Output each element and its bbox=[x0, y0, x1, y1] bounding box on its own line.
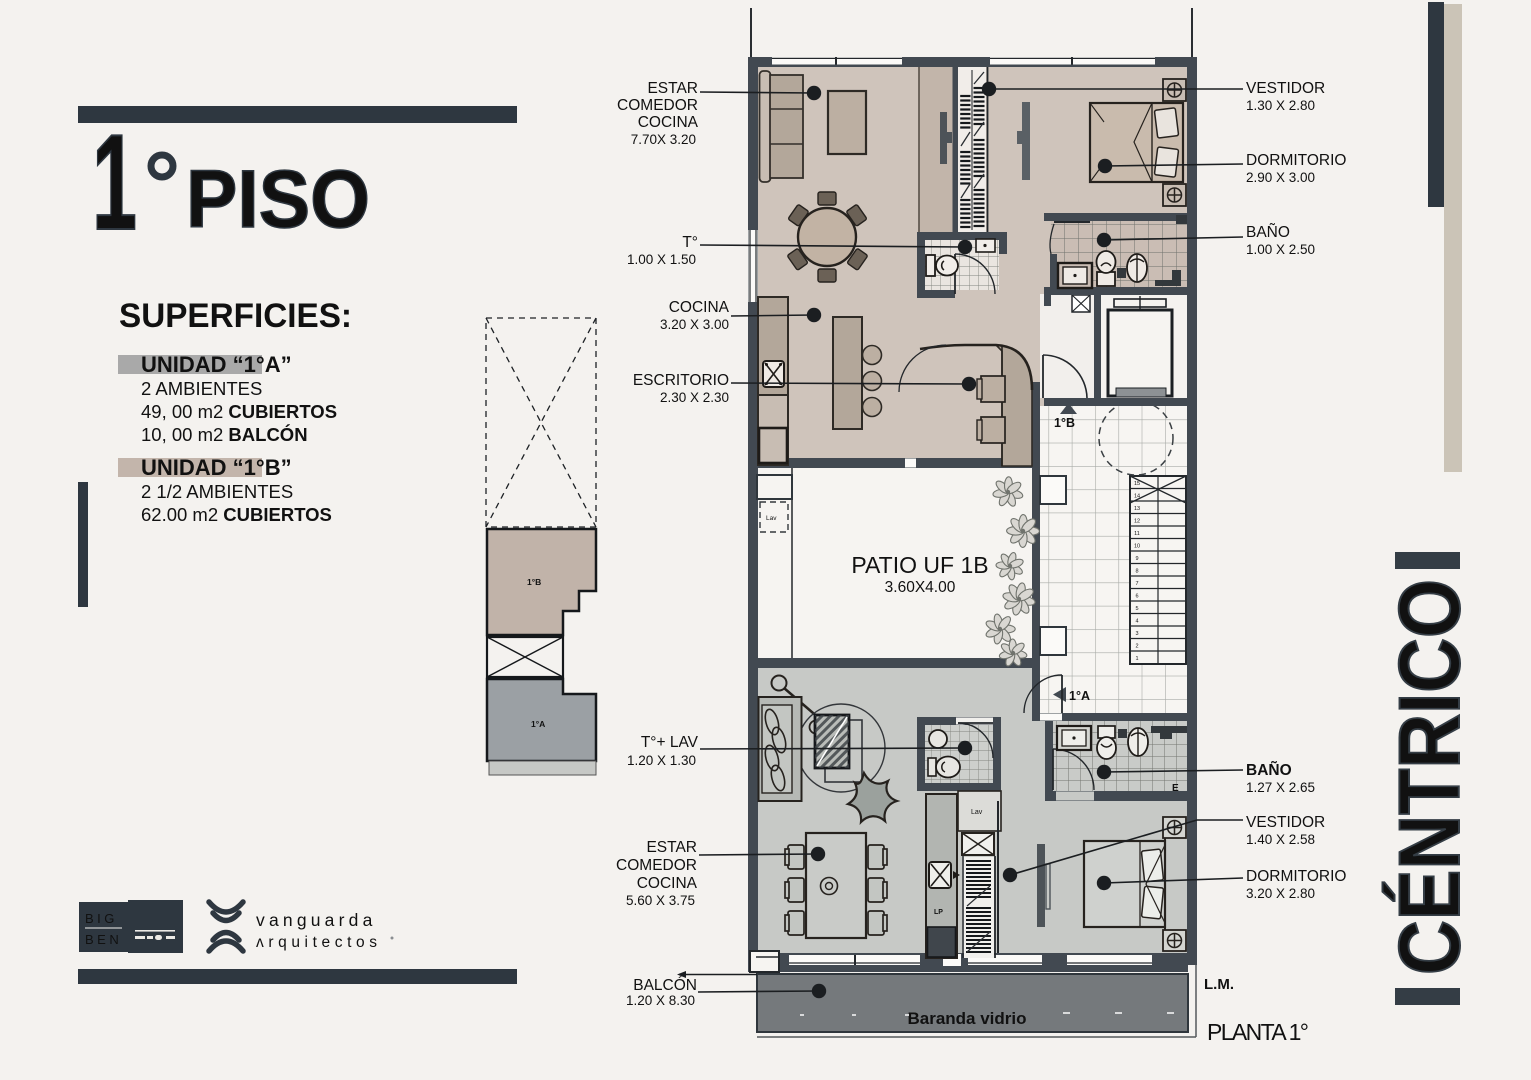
svg-text:3.20 X 3.00: 3.20 X 3.00 bbox=[660, 317, 729, 332]
svg-text:ESCRITORIO: ESCRITORIO bbox=[633, 372, 729, 389]
svg-text:2 AMBIENTES: 2 AMBIENTES bbox=[141, 378, 262, 399]
svg-text:1°A: 1°A bbox=[1069, 689, 1090, 703]
svg-text:BALCÓN: BALCÓN bbox=[633, 977, 697, 994]
svg-text:T°: T° bbox=[682, 234, 698, 251]
svg-text:5.60 X 3.75: 5.60 X 3.75 bbox=[626, 893, 695, 908]
svg-text:7: 7 bbox=[1135, 581, 1138, 587]
svg-text:1.40 X 2.58: 1.40 X 2.58 bbox=[1246, 832, 1315, 847]
svg-text:UNIDAD “1°B”: UNIDAD “1°B” bbox=[141, 455, 292, 480]
svg-text:3.20 X 2.80: 3.20 X 2.80 bbox=[1246, 886, 1315, 901]
svg-text:3.60X4.00: 3.60X4.00 bbox=[885, 579, 956, 596]
svg-text:PLANTA 1°: PLANTA 1° bbox=[1207, 1019, 1309, 1045]
svg-text:6: 6 bbox=[1135, 594, 1138, 600]
svg-text:BIG: BIG bbox=[85, 911, 118, 926]
svg-text:62.00 m2 CUBIERTOS: 62.00 m2 CUBIERTOS bbox=[141, 504, 332, 525]
svg-text:13: 13 bbox=[1134, 506, 1140, 512]
svg-text:LP: LP bbox=[934, 909, 943, 916]
svg-text:L.M.: L.M. bbox=[1204, 976, 1234, 993]
svg-text:7.70X 3.20: 7.70X 3.20 bbox=[631, 132, 696, 147]
svg-text:vanguarda: vanguarda bbox=[256, 910, 377, 930]
svg-text:12: 12 bbox=[1134, 519, 1140, 525]
svg-text:1.27 X 2.65: 1.27 X 2.65 bbox=[1246, 780, 1315, 795]
svg-text:2: 2 bbox=[1135, 644, 1138, 650]
svg-text:VESTIDOR: VESTIDOR bbox=[1246, 80, 1325, 97]
svg-text:1.00 X 1.50: 1.00 X 1.50 bbox=[627, 252, 696, 267]
svg-text:2 1/2 AMBIENTES: 2 1/2 AMBIENTES bbox=[141, 481, 293, 502]
svg-text:COCINA: COCINA bbox=[669, 299, 730, 316]
svg-text:4: 4 bbox=[1135, 619, 1138, 625]
svg-text:1°B: 1°B bbox=[527, 577, 541, 587]
svg-text:BAÑO: BAÑO bbox=[1246, 761, 1292, 779]
svg-text:BEN: BEN bbox=[85, 932, 122, 947]
svg-text:2.90 X 3.00: 2.90 X 3.00 bbox=[1246, 170, 1315, 185]
svg-text:49, 00 m2 CUBIERTOS: 49, 00 m2 CUBIERTOS bbox=[141, 401, 337, 422]
svg-text:PISO: PISO bbox=[186, 154, 370, 245]
svg-text:5: 5 bbox=[1135, 606, 1138, 612]
svg-text:ESTAR: ESTAR bbox=[647, 80, 698, 97]
svg-text:UNIDAD “1°A”: UNIDAD “1°A” bbox=[141, 352, 292, 377]
svg-text:1.30 X 2.80: 1.30 X 2.80 bbox=[1246, 98, 1315, 113]
svg-text:14: 14 bbox=[1134, 494, 1140, 500]
svg-text:COCINA: COCINA bbox=[637, 875, 698, 892]
svg-text:11: 11 bbox=[1134, 531, 1140, 537]
svg-text:E: E bbox=[1172, 783, 1179, 794]
svg-text:1°B: 1°B bbox=[1054, 416, 1075, 430]
svg-text:Lav: Lav bbox=[766, 515, 777, 522]
svg-text:Baranda vidrio: Baranda vidrio bbox=[907, 1009, 1026, 1028]
svg-text:1°A: 1°A bbox=[531, 719, 545, 729]
svg-text:1.00 X 2.50: 1.00 X 2.50 bbox=[1246, 242, 1315, 257]
svg-text:1.20 X 1.30: 1.20 X 1.30 bbox=[627, 753, 696, 768]
svg-text:1: 1 bbox=[1135, 656, 1138, 662]
svg-text:SUPERFICIES:: SUPERFICIES: bbox=[119, 297, 352, 335]
svg-text:COCINA: COCINA bbox=[638, 114, 699, 131]
svg-text:3: 3 bbox=[1135, 631, 1138, 637]
svg-text:10, 00 m2 BALCÓN: 10, 00 m2 BALCÓN bbox=[141, 424, 308, 445]
svg-text:Lav: Lav bbox=[971, 809, 983, 816]
svg-text:COMEDOR: COMEDOR bbox=[617, 97, 698, 114]
svg-text:DORMITORIO: DORMITORIO bbox=[1246, 152, 1346, 169]
svg-text:T°+ LAV: T°+ LAV bbox=[641, 734, 699, 751]
svg-text:9: 9 bbox=[1135, 556, 1138, 562]
svg-text:8: 8 bbox=[1135, 569, 1138, 575]
svg-text:ESTAR: ESTAR bbox=[646, 839, 697, 856]
svg-text:DORMITORIO: DORMITORIO bbox=[1246, 868, 1346, 885]
svg-text:CÉNTRICO: CÉNTRICO bbox=[1382, 579, 1478, 975]
svg-text:2.30 X 2.30: 2.30 X 2.30 bbox=[660, 390, 729, 405]
svg-text:VESTIDOR: VESTIDOR bbox=[1246, 814, 1325, 831]
svg-text:1.20 X 8.30: 1.20 X 8.30 bbox=[626, 993, 695, 1008]
svg-text:10: 10 bbox=[1134, 544, 1140, 550]
svg-text:ʌrquitectos: ʌrquitectos bbox=[256, 934, 382, 951]
svg-text:BAÑO: BAÑO bbox=[1246, 224, 1290, 241]
svg-text:COMEDOR: COMEDOR bbox=[616, 857, 697, 874]
svg-text:1: 1 bbox=[92, 106, 137, 258]
svg-text:PATIO UF 1B: PATIO UF 1B bbox=[851, 552, 988, 578]
svg-text:15: 15 bbox=[1134, 481, 1140, 487]
